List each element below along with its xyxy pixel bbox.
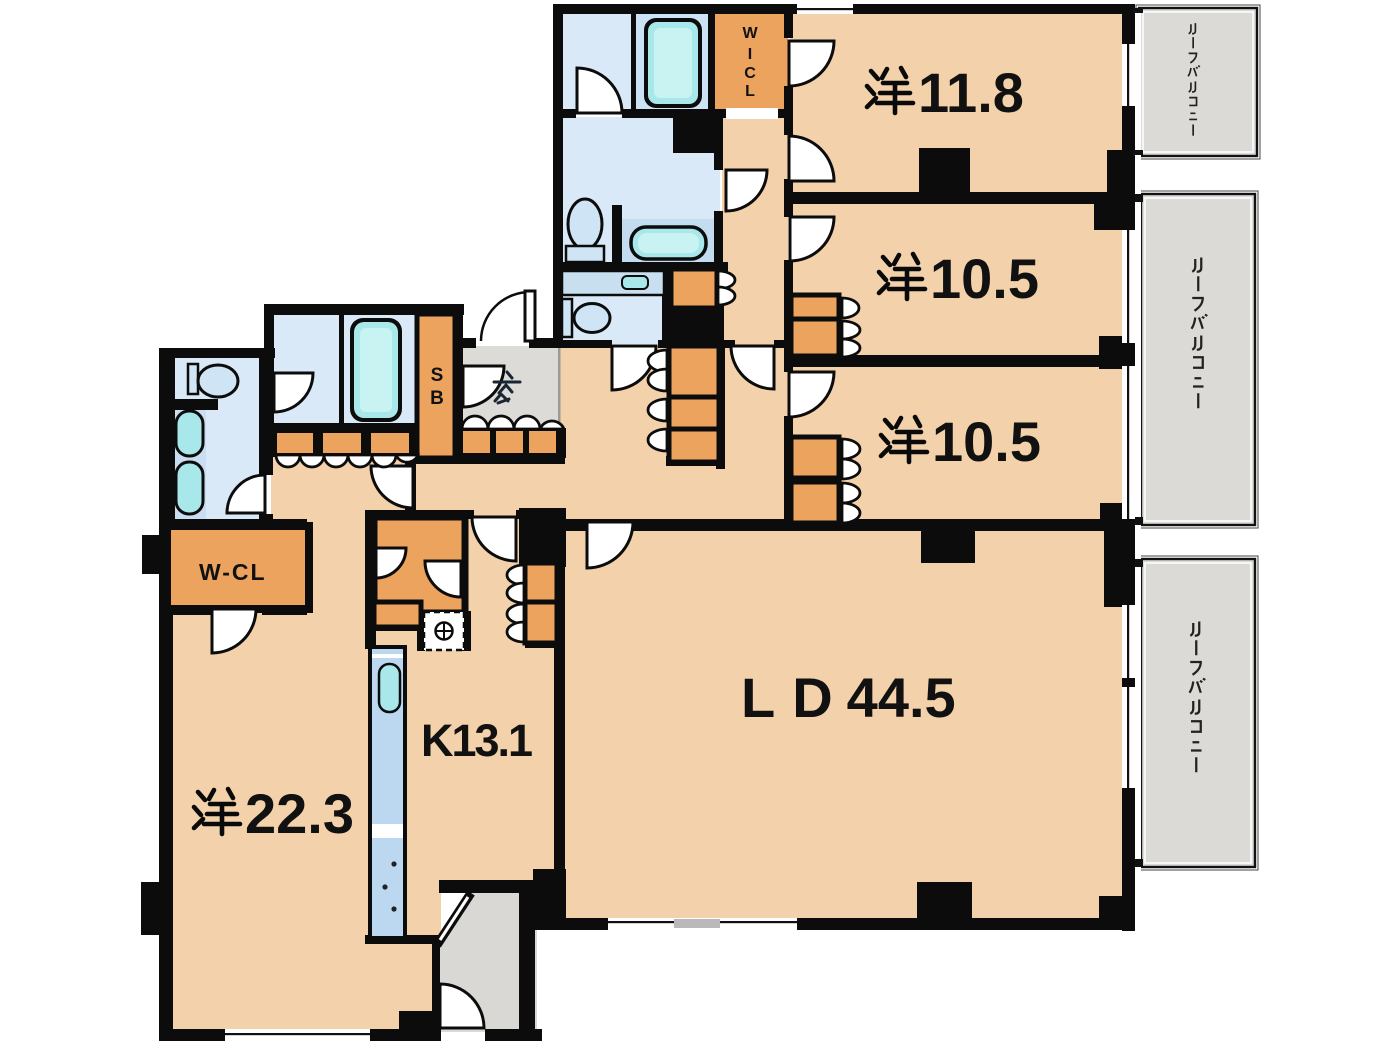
svg-text:22.3: 22.3 xyxy=(245,782,354,845)
svg-text:LD44.5: LD44.5 xyxy=(741,666,956,729)
svg-text:10.5: 10.5 xyxy=(932,410,1041,473)
svg-text:B: B xyxy=(430,388,444,409)
svg-text:L: L xyxy=(745,83,755,100)
svg-text:C: C xyxy=(744,65,756,82)
svg-text:11.8: 11.8 xyxy=(918,61,1024,124)
svg-text:W: W xyxy=(742,25,758,42)
svg-text:S: S xyxy=(431,365,444,386)
svg-text:W-CL: W-CL xyxy=(199,559,267,585)
svg-text:K13.1: K13.1 xyxy=(421,715,532,766)
svg-text:I: I xyxy=(748,46,752,63)
svg-text:10.5: 10.5 xyxy=(930,247,1039,310)
